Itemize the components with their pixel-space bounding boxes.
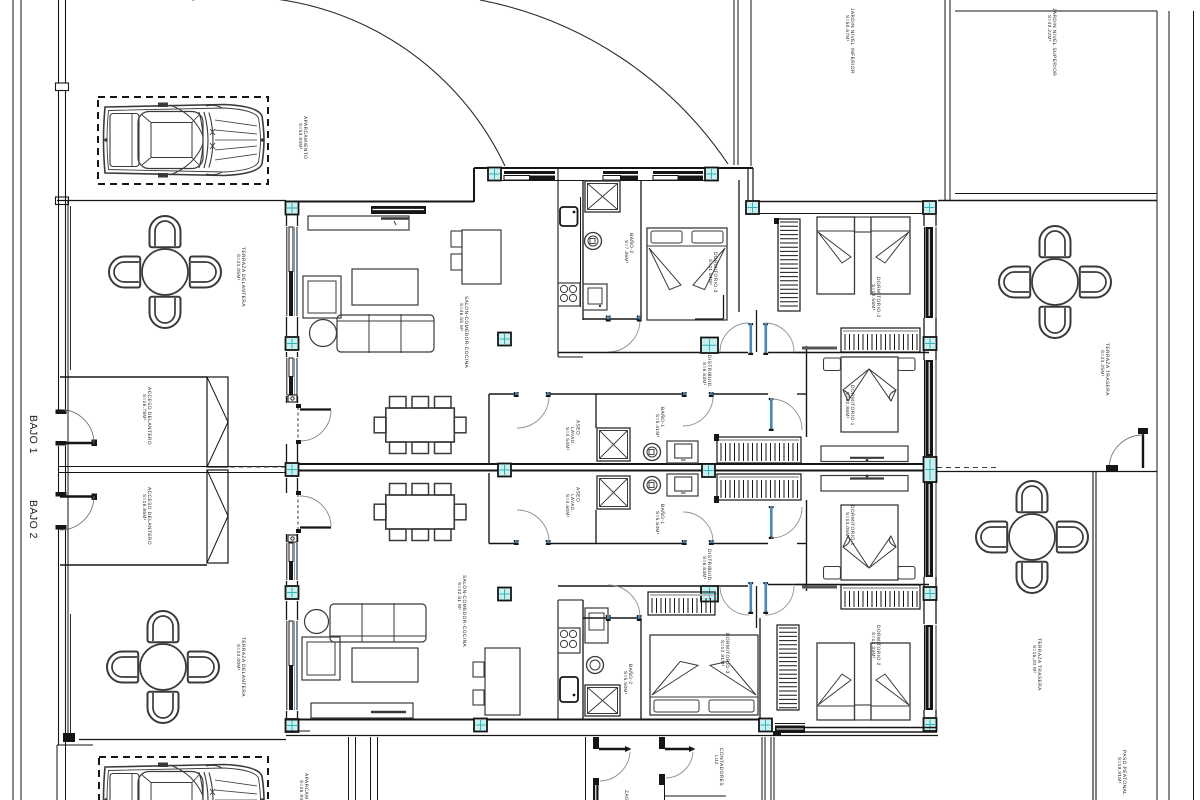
svg-text:S=49.22M²: S=49.22M² [1047, 15, 1052, 42]
svg-text:S=12.86M²: S=12.86M² [845, 392, 850, 419]
svg-text:ZAGUAN: ZAGUAN [623, 790, 629, 800]
svg-text:S=4.54M²: S=4.54M² [565, 427, 570, 451]
svg-text:S=26.94M²: S=26.94M² [299, 780, 304, 800]
svg-text:S=5.64M²: S=5.64M² [655, 511, 660, 535]
svg-text:CONTADORES: CONTADORES [718, 748, 724, 786]
svg-text:S=24.05M²: S=24.05M² [236, 254, 241, 281]
svg-text:LUZ: LUZ [714, 755, 719, 765]
svg-text:S=6.63M²: S=6.63M² [702, 362, 707, 386]
svg-text:S=13,05M²: S=13,05M² [845, 512, 850, 539]
svg-text:S=4.60M²: S=4.60M² [565, 494, 570, 518]
svg-text:S=24.00M²: S=24.00M² [236, 644, 241, 671]
svg-text:S=5.41M²: S=5.41M² [655, 414, 660, 438]
svg-text:S=6.63M²: S=6.63M² [702, 556, 707, 580]
svg-text:S=50.67M²: S=50.67M² [845, 15, 850, 42]
svg-text:BAJO 2: BAJO 2 [27, 500, 39, 539]
svg-text:S=11.54M²: S=11.54M² [708, 259, 713, 285]
svg-text:BAJO 1: BAJO 1 [27, 415, 39, 454]
svg-text:S=5.50M²: S=5.50M² [623, 671, 628, 695]
svg-text:S=12.33M²: S=12.33M² [871, 632, 876, 659]
svg-text:S=24.25M²: S=24.25M² [1100, 350, 1105, 377]
svg-text:S=42.61 M²: S=42.61 M² [457, 582, 462, 610]
svg-text:S=53.94M²: S=53.94M² [298, 123, 303, 150]
svg-text:S=12.56M²: S=12.56M² [871, 284, 876, 311]
svg-text:S=16.86M²: S=16.86M² [142, 494, 147, 521]
svg-text:S=7.36M²: S=7.36M² [624, 240, 629, 264]
svg-text:S=16.78M²: S=16.78M² [142, 394, 147, 421]
svg-text:S=12.91M²: S=12.91M² [720, 640, 725, 667]
svg-text:S=19,91M²: S=19,91M² [1117, 757, 1122, 784]
svg-text:S=16,20 M²: S=16,20 M² [1032, 645, 1037, 673]
svg-text:S=46.55 M²: S=46.55 M² [459, 303, 464, 331]
